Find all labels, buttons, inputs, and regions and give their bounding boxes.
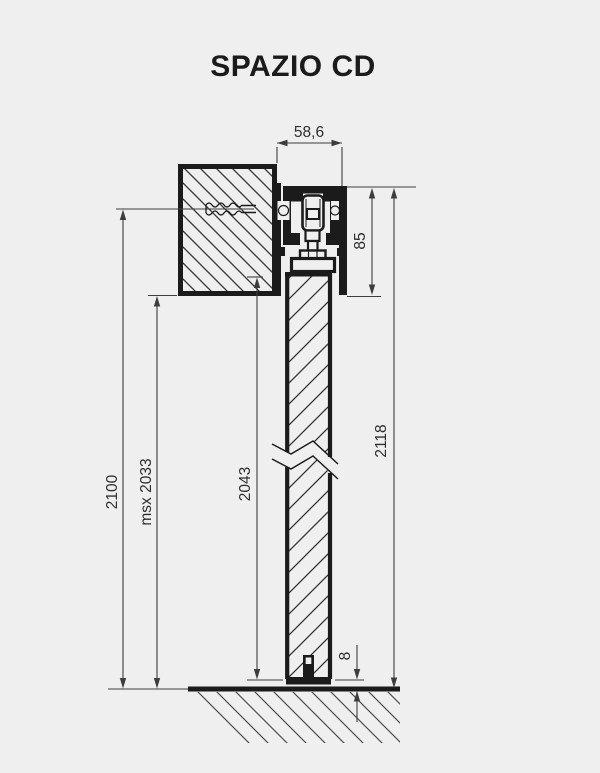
dim-max-clear: msx 2033 <box>138 296 177 689</box>
arrow-down <box>354 669 360 680</box>
technical-drawing-page: SPAZIO CD <box>0 0 600 773</box>
dim-label-8: 8 <box>337 652 354 661</box>
dim-track-width: 58,6 <box>277 124 342 186</box>
spazio-cd-section-drawing: SPAZIO CD <box>0 0 600 773</box>
right-boss <box>337 248 341 256</box>
track-right-return <box>326 233 339 245</box>
door-lower-hatch <box>289 456 329 677</box>
hanger-bolt-upper <box>306 231 320 242</box>
wheel-hub <box>307 209 319 219</box>
arrow-down <box>254 669 260 680</box>
dim-door-height: 2043 <box>237 277 283 680</box>
wall-mount-strip <box>273 183 281 296</box>
dim-label-58-6: 58,6 <box>294 124 324 141</box>
track-left-lip <box>291 194 303 202</box>
wall-section <box>181 167 275 294</box>
page-title: SPAZIO CD <box>210 50 376 83</box>
door-upper-hatch <box>289 276 329 456</box>
wall-hatch-block <box>181 167 275 294</box>
arrow-up <box>154 296 160 307</box>
right-screw-pocket <box>331 201 339 220</box>
fascia-plate <box>339 186 347 295</box>
guide-channel-bar <box>286 677 331 685</box>
dim-total-height: 2118 <box>373 188 397 688</box>
arrow-down <box>154 678 160 689</box>
dim-label-2100: 2100 <box>104 474 121 509</box>
track-left-return <box>283 233 300 245</box>
door-panel <box>272 272 338 679</box>
door-top-edge <box>285 272 332 277</box>
arrow-right <box>332 140 343 146</box>
arrow-left <box>277 140 288 146</box>
door-clamp-plate <box>292 259 335 272</box>
arrow-down <box>391 678 397 689</box>
arrow-up <box>369 188 375 199</box>
dim-label-msx-2033: msx 2033 <box>138 458 155 525</box>
dim-opening-height: 2100 <box>104 210 126 689</box>
dim-mech-height: 85 <box>347 188 381 297</box>
arrow-down <box>120 678 126 689</box>
left-boss <box>279 247 285 256</box>
dim-label-2118: 2118 <box>373 424 390 457</box>
arrow-up <box>120 210 126 221</box>
dim-label-85: 85 <box>352 232 369 249</box>
arrow-down <box>369 285 375 296</box>
track-top-plate <box>283 186 347 194</box>
arrow-up <box>391 188 397 199</box>
dim-label-2043: 2043 <box>237 467 254 501</box>
guide-stem-notch <box>306 658 312 665</box>
hanger-bolt-lower <box>308 241 318 251</box>
left-screw-pocket <box>278 201 290 220</box>
ground-hatch <box>190 692 400 743</box>
